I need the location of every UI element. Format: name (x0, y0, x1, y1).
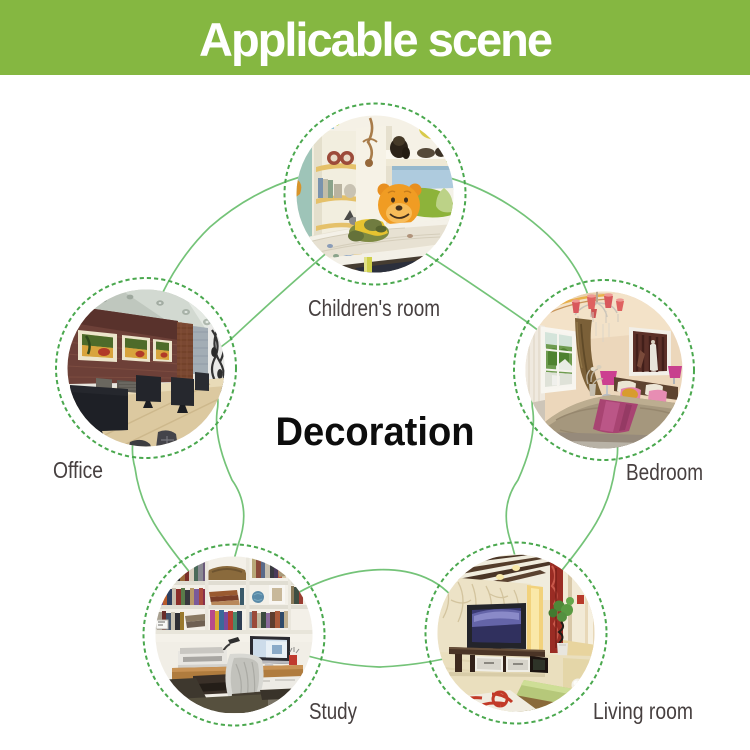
svg-text:Office: Office (53, 457, 103, 483)
svg-text:Children's room: Children's room (308, 295, 440, 321)
svg-text:Bedroom: Bedroom (626, 459, 703, 485)
svg-text:Study: Study (309, 698, 357, 724)
svg-text:Decoration: Decoration (276, 410, 475, 454)
svg-text:Living room: Living room (593, 698, 693, 724)
